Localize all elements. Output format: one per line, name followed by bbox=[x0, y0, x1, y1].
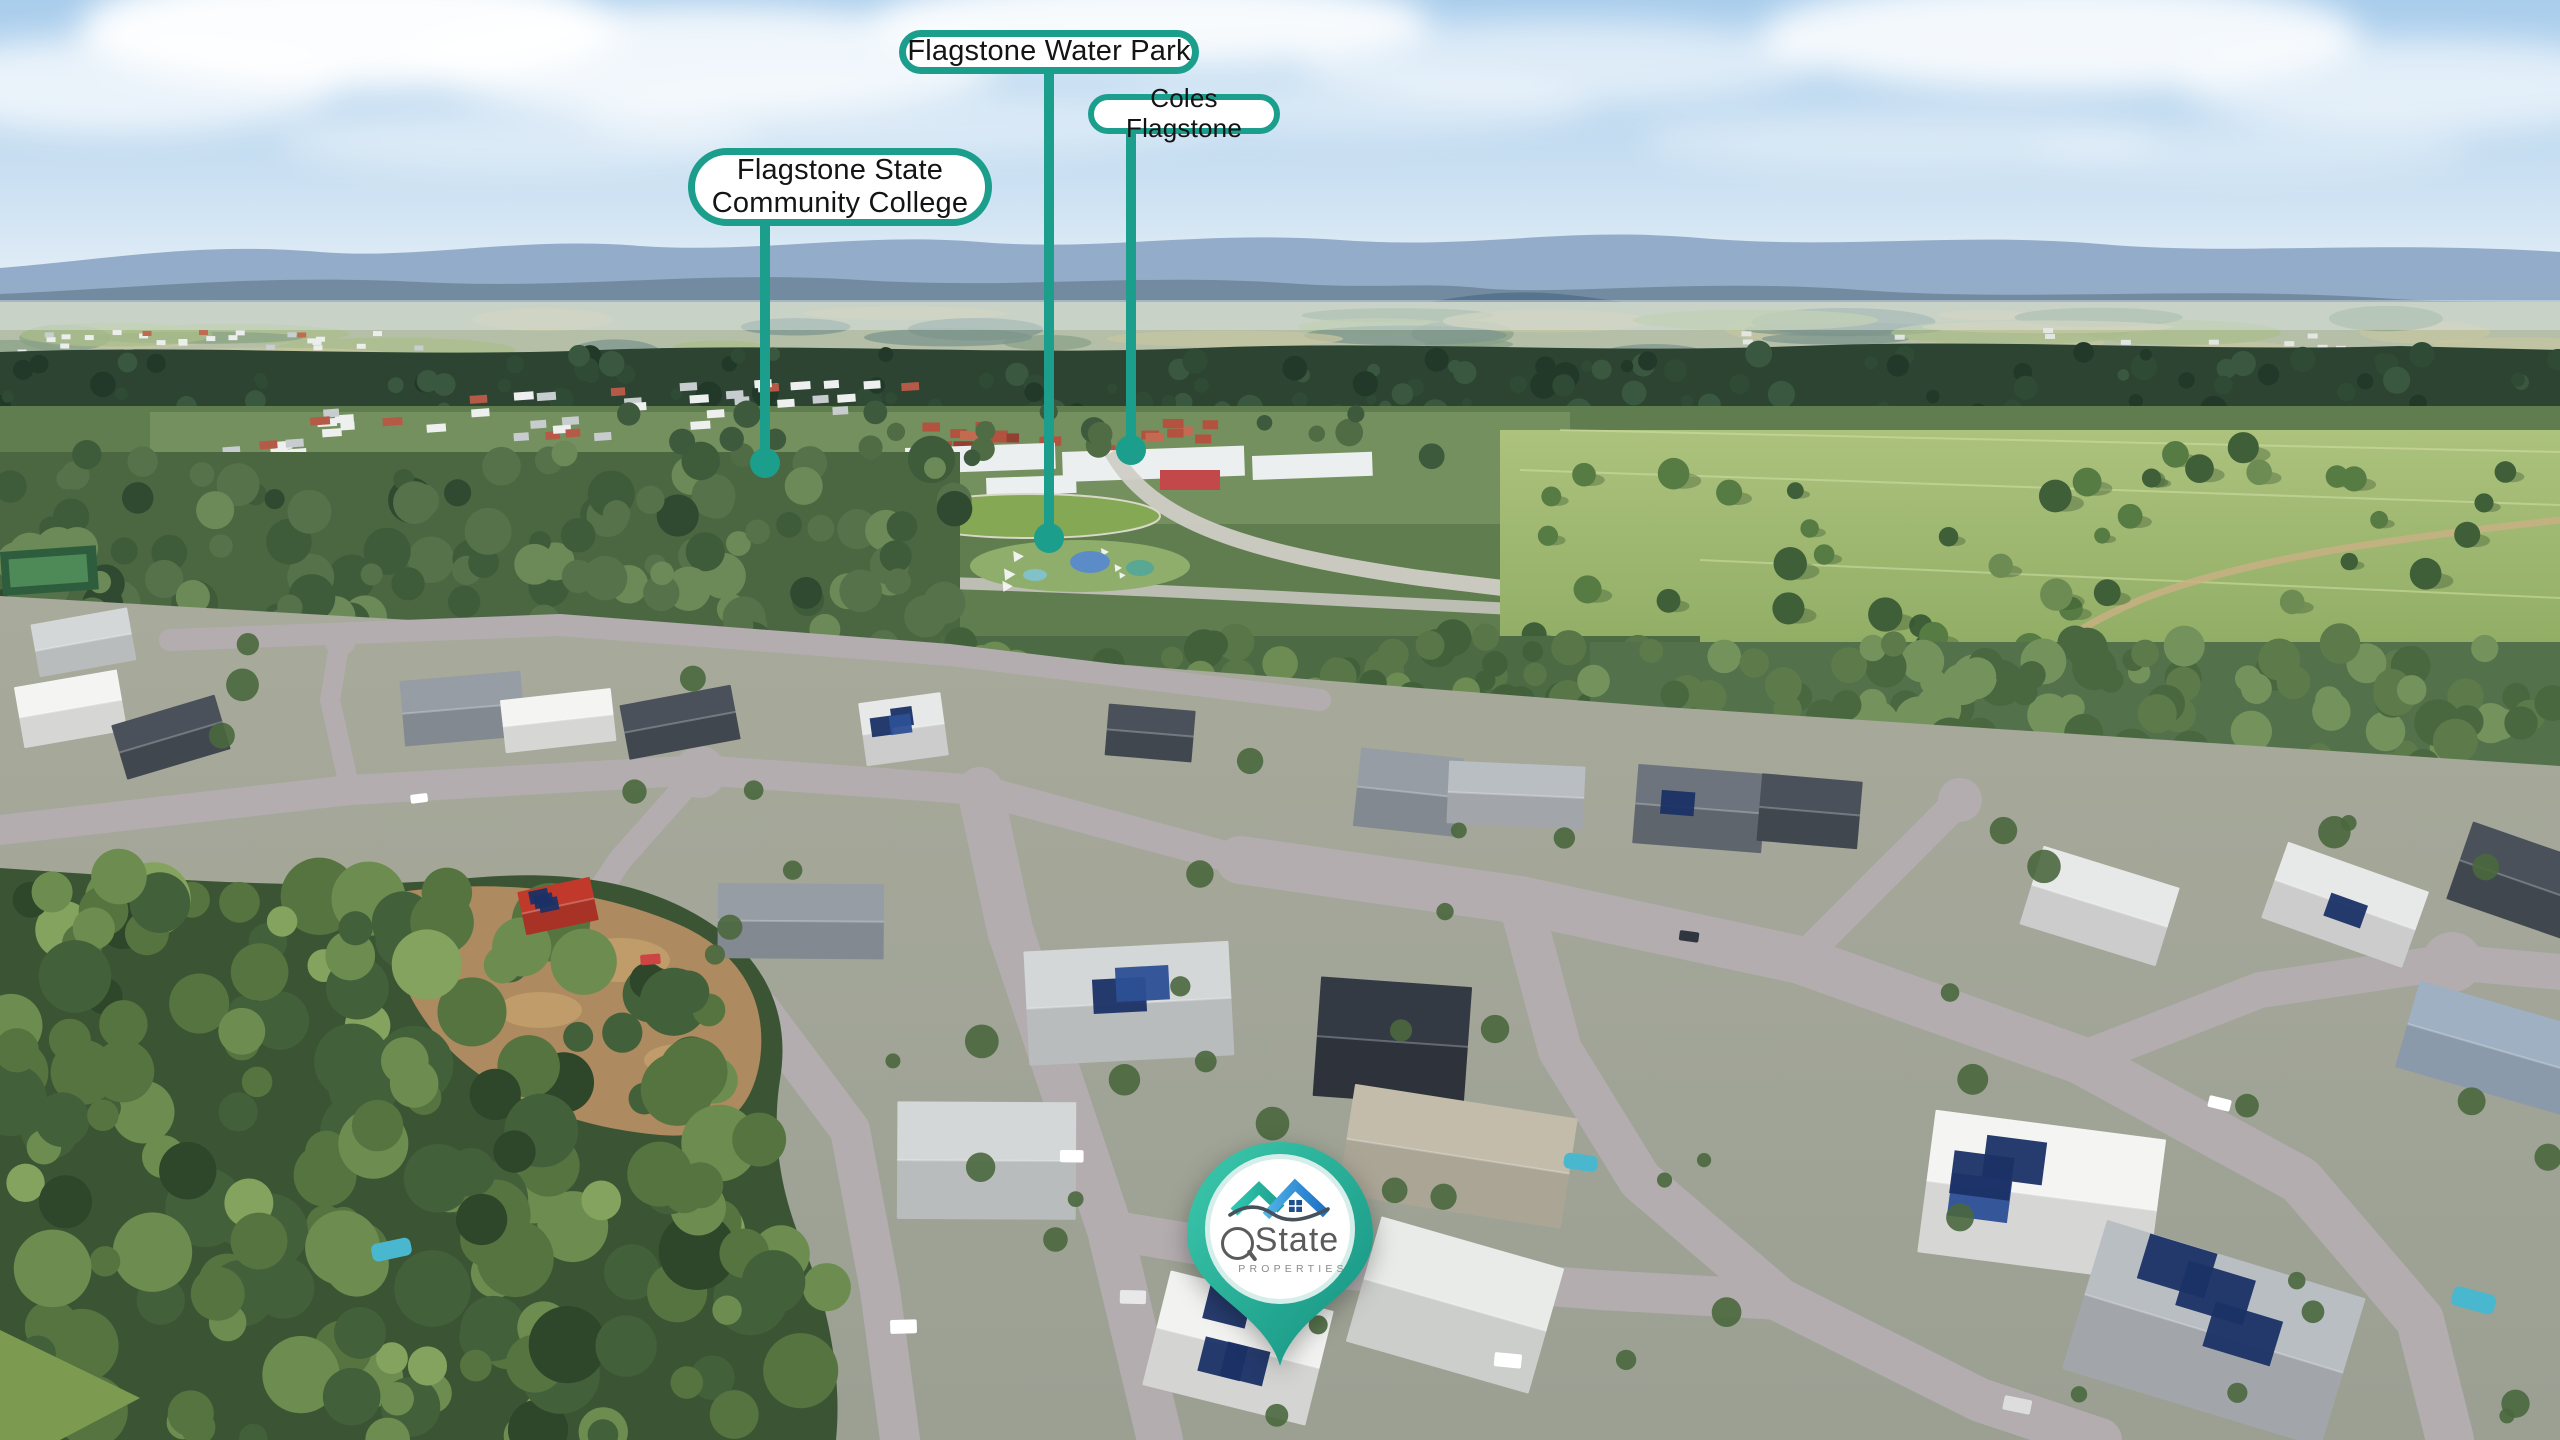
brand-map-pin: State PROPERTIES bbox=[1184, 1140, 1376, 1368]
logo-wordmark: State bbox=[1221, 1220, 1339, 1260]
coles-label-text: Coles Flagstone bbox=[1094, 84, 1274, 143]
college-label: Flagstone State Community College bbox=[688, 148, 992, 226]
college-label-line1: Flagstone State bbox=[737, 154, 943, 187]
college-label-line2: Community College bbox=[712, 187, 968, 220]
college-callout-line bbox=[760, 224, 770, 450]
logo-properties-text: PROPERTIES bbox=[1238, 1263, 1348, 1275]
college-location-dot bbox=[750, 448, 780, 478]
water-park-label: Flagstone Water Park bbox=[899, 30, 1199, 74]
coles-callout-line bbox=[1126, 132, 1136, 436]
coles-label: Coles Flagstone bbox=[1088, 94, 1280, 134]
logo-house-icon bbox=[1228, 1172, 1332, 1222]
water-park-callout-line bbox=[1044, 72, 1054, 524]
water-park-location-dot bbox=[1034, 523, 1064, 553]
logo-state-text: State bbox=[1255, 1221, 1339, 1260]
logo-q-letter bbox=[1221, 1227, 1254, 1260]
pin-logo-disc: State PROPERTIES bbox=[1205, 1154, 1355, 1304]
water-park-label-text: Flagstone Water Park bbox=[907, 35, 1190, 68]
aerial-photo-stage: Flagstone Water Park Coles Flagstone Fla… bbox=[0, 0, 2560, 1440]
coles-location-dot bbox=[1116, 435, 1146, 465]
